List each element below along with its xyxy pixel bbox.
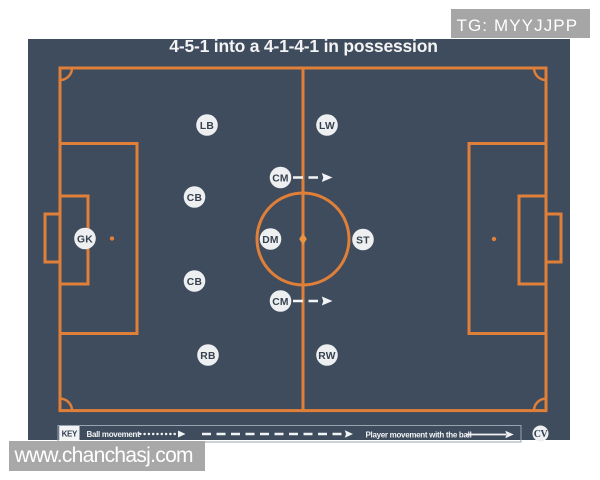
- svg-text:Ball movement: Ball movement: [87, 430, 141, 439]
- svg-text:Player movement with the ball: Player movement with the ball: [366, 431, 472, 440]
- svg-text:ST: ST: [356, 235, 370, 246]
- svg-text:LB: LB: [200, 121, 214, 132]
- svg-text:RB: RB: [200, 351, 215, 362]
- svg-text:CB: CB: [187, 193, 202, 204]
- svg-text:CM: CM: [272, 297, 289, 308]
- svg-text:DM: DM: [262, 235, 279, 246]
- svg-text:CV: CV: [534, 429, 549, 440]
- svg-text:RW: RW: [318, 351, 336, 362]
- svg-text:LW: LW: [319, 121, 335, 132]
- svg-text:GK: GK: [77, 234, 93, 245]
- svg-text:CB: CB: [187, 277, 202, 288]
- svg-text:CM: CM: [272, 173, 289, 184]
- svg-text:KEY: KEY: [62, 429, 78, 438]
